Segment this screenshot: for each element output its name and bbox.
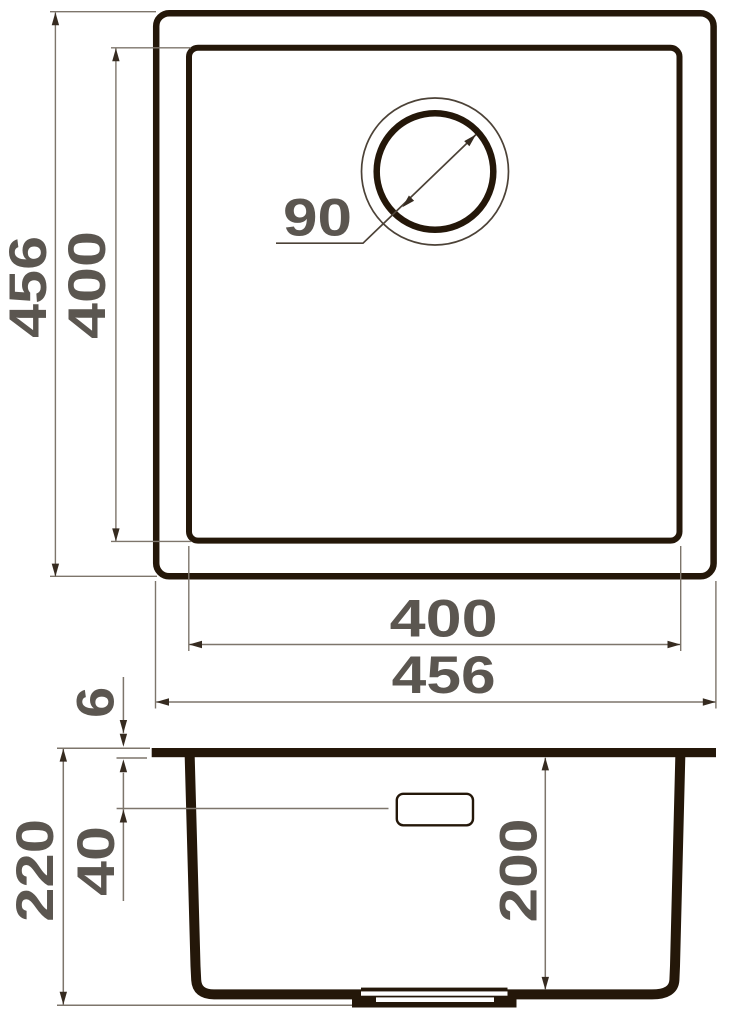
svg-text:400: 400	[390, 590, 498, 649]
svg-text:400: 400	[58, 231, 117, 339]
svg-text:6: 6	[67, 687, 126, 718]
svg-text:90: 90	[283, 189, 352, 248]
svg-text:456: 456	[392, 646, 496, 705]
svg-text:200: 200	[490, 819, 549, 923]
svg-text:40: 40	[67, 826, 126, 896]
svg-text:220: 220	[6, 819, 65, 922]
svg-text:456: 456	[0, 236, 58, 338]
